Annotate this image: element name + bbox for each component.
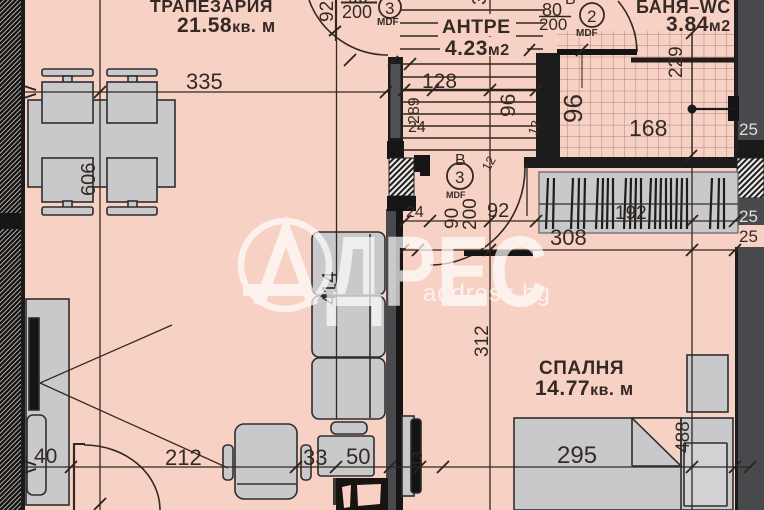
svg-text:3: 3: [455, 168, 464, 187]
svg-text:50: 50: [346, 444, 370, 469]
svg-text:25: 25: [739, 227, 758, 246]
svg-text:92: 92: [317, 1, 338, 22]
svg-text:312: 312: [472, 325, 493, 357]
svg-text:33: 33: [303, 445, 327, 470]
svg-text:3: 3: [385, 0, 394, 18]
svg-text:168: 168: [629, 115, 667, 141]
svg-text:488: 488: [673, 421, 694, 453]
svg-text:2: 2: [587, 7, 596, 26]
svg-text:335: 335: [186, 69, 223, 94]
svg-text:212: 212: [165, 445, 202, 470]
svg-text:200: 200: [539, 15, 567, 34]
svg-text:13: 13: [409, 451, 425, 467]
svg-text:40: 40: [34, 445, 57, 468]
svg-text:295: 295: [557, 442, 597, 469]
svg-text:229: 229: [666, 46, 687, 78]
svg-text:MDF: MDF: [377, 17, 399, 28]
svg-text:21.58кв. м: 21.58кв. м: [177, 14, 276, 37]
svg-text:90: 90: [348, 0, 368, 7]
svg-text:АНТРЕ: АНТРЕ: [442, 16, 511, 38]
svg-text:ДРЕС: ДРЕС: [326, 217, 547, 329]
svg-text:address.bg: address.bg: [423, 280, 551, 307]
svg-text:96: 96: [558, 94, 588, 123]
svg-text:14.77кв. м: 14.77кв. м: [535, 377, 634, 400]
svg-text:128: 128: [422, 70, 457, 93]
svg-text:СПАЛНЯ: СПАЛНЯ: [539, 358, 624, 379]
svg-text:35: 35: [469, 0, 491, 5]
svg-text:MDF: MDF: [576, 28, 598, 39]
svg-text:308: 308: [550, 225, 587, 250]
svg-text:25: 25: [739, 120, 758, 139]
svg-text:96: 96: [497, 94, 520, 117]
svg-text:В: В: [565, 0, 576, 8]
svg-text:25: 25: [739, 207, 758, 226]
svg-text:В: В: [455, 152, 466, 169]
svg-text:192: 192: [615, 203, 647, 224]
svg-text:289: 289: [406, 97, 423, 124]
svg-text:606: 606: [78, 163, 100, 196]
